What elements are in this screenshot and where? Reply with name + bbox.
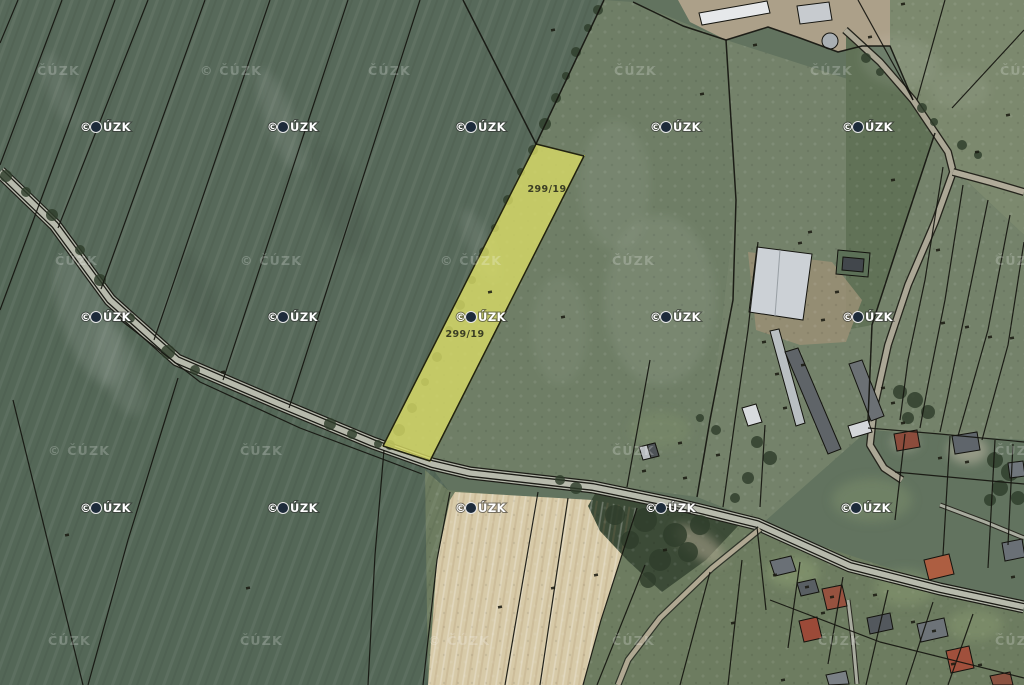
watermark-org: ÚZK [103,119,132,134]
watermark-copyright: © [842,310,854,324]
tree [696,414,704,422]
watermark-org: ÚZK [290,119,319,134]
watermark-copyright: © [842,120,854,134]
watermark-copyright: © [80,501,92,515]
watermark-cuzk-bold: ©ÚZK [650,119,702,134]
tree [46,209,58,221]
watermark-org: ÚZK [290,309,319,324]
watermark-cuzk-faint: © ČÚZK [440,253,502,268]
watermark-cuzk-bold: ©ÚZK [80,500,132,515]
watermark-copyright: © [840,501,852,515]
watermark-org: ÚZK [103,309,132,324]
tree [640,572,656,588]
watermark-cuzk-faint: ČÚZK [614,63,657,78]
parcel-number-marker [1011,575,1015,578]
cuzk-globe-icon [91,503,102,514]
house [894,430,920,451]
watermark-copyright: © [650,310,662,324]
watermark-cuzk-faint: ČÚZK [368,63,411,78]
watermark-org: ÚZK [478,309,507,324]
tree [861,53,871,63]
watermark-copyright: © [267,310,279,324]
cuzk-globe-icon [91,122,102,133]
watermark-cuzk-faint: ČÚZK [240,443,283,458]
tree [0,170,12,182]
boundary-line [943,436,950,555]
tree [678,542,698,562]
tree [605,505,625,525]
cuzk-globe-icon [466,122,477,133]
tree [347,429,357,439]
tree [1011,491,1024,505]
watermark-cuzk-bold: ©ÚZK [645,500,697,515]
tree [730,493,740,503]
watermark-cuzk-bold: ©ÚZK [650,309,702,324]
watermark-cuzk-bold: ©ÚZK [80,119,132,134]
watermark-org: ÚZK [673,119,702,134]
lane-east [940,505,1024,538]
cuzk-globe-icon [661,122,672,133]
watermark-org: ÚZK [863,500,892,515]
watermark-org: ÚZK [290,500,319,515]
watermark-org: ÚZK [865,119,894,134]
tree [907,392,923,408]
watermark-cuzk-faint: ČÚZK [612,633,655,648]
watermark-copyright: © [80,120,92,134]
watermark-cuzk-faint: ČÚZK [55,253,98,268]
cuzk-globe-icon [853,312,864,323]
watermark-copyright: © [80,310,92,324]
house [1002,539,1024,561]
watermark-cuzk-bold: ©ÚZK [267,309,319,324]
cuzk-globe-icon [853,122,864,133]
cuzk-globe-icon [656,503,667,514]
barn-large [749,247,812,320]
cuzk-globe-icon [278,122,289,133]
tree [876,68,884,76]
tree [621,531,639,549]
parcel-label: 299/19 [446,329,485,340]
watermark-cuzk-faint: ČÚZK [995,253,1024,268]
watermark-copyright: © [645,501,657,515]
tree [649,549,671,571]
tree [690,515,710,535]
house [1008,461,1024,478]
watermark-cuzk-bold: ©ÚZK [455,309,507,324]
watermark-org: ÚZK [103,500,132,515]
farm-building [797,2,832,24]
watermark-cuzk-faint: ČÚZK [1000,63,1024,78]
watermark-copyright: © [455,501,467,515]
watermark-cuzk-faint: ČÚZK [612,443,655,458]
watermark-org: ÚZK [478,500,507,515]
tree [21,187,31,197]
tree [324,418,336,430]
watermark-cuzk-bold: ©ÚZK [455,500,507,515]
watermark-copyright: © [455,310,467,324]
watermark-cuzk-bold: ©ÚZK [455,119,507,134]
cuzk-globe-icon [278,312,289,323]
watermark-cuzk-faint: © ČÚZK [48,443,110,458]
tree [555,475,565,485]
watermark-cuzk-bold: ©ÚZK [267,119,319,134]
watermark-cuzk-faint: © ČÚZK [428,633,490,648]
tree [570,482,582,494]
watermark-copyright: © [267,501,279,515]
cadastral-map-view[interactable]: 299/19299/19 ©ÚZK©ÚZK©ÚZK©ÚZK©ÚZK©ÚZK©ÚZ… [0,0,1024,685]
tree [751,436,763,448]
watermark-org: ÚZK [478,119,507,134]
watermark-copyright: © [455,120,467,134]
cuzk-globe-icon [466,312,477,323]
cuzk-globe-icon [91,312,102,323]
parcel-label: 299/19 [528,184,567,195]
watermark-cuzk-faint: ČÚZK [810,63,853,78]
tree [711,425,721,435]
watermark-org: ÚZK [668,500,697,515]
terrain-patch [832,478,912,522]
house [924,554,954,580]
terrain-patch [580,120,650,250]
watermark-cuzk-faint: ČÚZK [48,633,91,648]
watermark-cuzk-bold: ©ÚZK [840,500,892,515]
tree [957,140,967,150]
tree [930,118,938,126]
tree [917,103,927,113]
house [822,585,847,610]
watermark-cuzk-faint: ČÚZK [818,633,861,648]
cuzk-globe-icon [661,312,672,323]
watermark-cuzk-bold: ©ÚZK [267,500,319,515]
watermark-cuzk-faint: ČÚZK [612,253,655,268]
tree [190,365,200,375]
watermark-cuzk-bold: ©ÚZK [842,119,894,134]
watermark-cuzk-bold: ©ÚZK [80,309,132,324]
farm-building [842,257,864,272]
tree [374,440,382,448]
cuzk-globe-icon [851,503,862,514]
watermark-cuzk-faint: ČÚZK [240,633,283,648]
watermark-copyright: © [267,120,279,134]
cuzk-globe-icon [278,503,289,514]
tree [763,451,777,465]
watermark-cuzk-faint: © ČÚZK [240,253,302,268]
watermark-cuzk-faint: ČÚZK [995,633,1024,648]
cuzk-globe-icon [466,503,477,514]
watermark-org: ÚZK [673,309,702,324]
watermark-cuzk-faint: ČÚZK [995,443,1024,458]
watermark-copyright: © [650,120,662,134]
parcel-number-marker [753,43,757,46]
terrain-patch [532,275,588,385]
parcel-number-marker [938,456,942,459]
watermark-cuzk-faint: ČÚZK [37,63,80,78]
map-canvas[interactable]: 299/19299/19 ©ÚZK©ÚZK©ÚZK©ÚZK©ÚZK©ÚZK©ÚZ… [0,0,1024,685]
tree [742,472,754,484]
tree [984,494,996,506]
watermark-cuzk-faint: © ČÚZK [200,63,262,78]
watermark-org: ÚZK [865,309,894,324]
watermark-cuzk-bold: ©ÚZK [842,309,894,324]
